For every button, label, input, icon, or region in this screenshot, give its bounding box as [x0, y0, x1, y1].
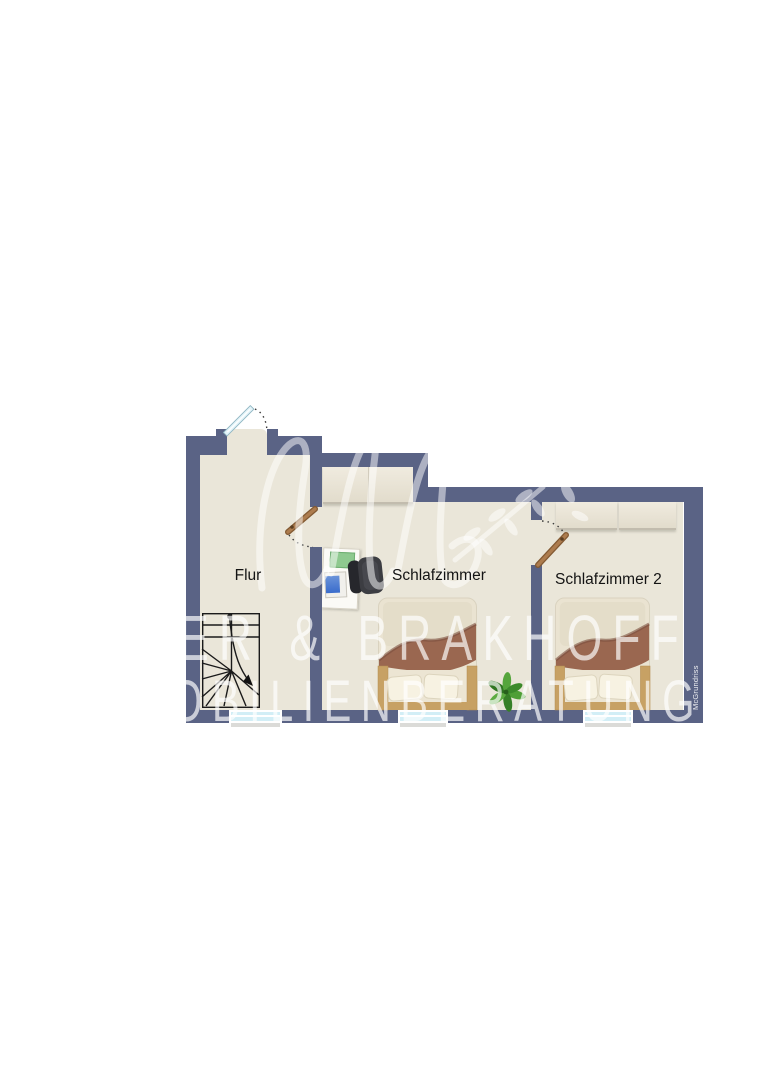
room-label-flur: Flur: [220, 567, 276, 585]
svg-text:ER & BRAKHOFF: ER & BRAKHOFF: [178, 603, 689, 674]
plan-graphics: ER & BRAKHOFF OBILIENBERATUNG: [0, 0, 763, 1080]
room-label-schlafzimmer: Schlafzimmer: [392, 567, 486, 585]
watermark-leaves: [461, 468, 589, 557]
door-schlafzimmer-schlafzimmer2: [538, 521, 566, 565]
entrance-door: [223, 406, 267, 436]
room-label-schlafzimmer2: Schlafzimmer 2: [555, 571, 662, 589]
office-chair: [347, 556, 385, 596]
svg-text:OBILIENBERATUNG: OBILIENBERATUNG: [170, 668, 704, 733]
floor-plan-page: ER & BRAKHOFF OBILIENBERATUNG Flur Schla…: [0, 0, 763, 1080]
entrance-door-swing-arc: [255, 409, 267, 431]
watermark-row-1: ER & BRAKHOFF: [178, 603, 689, 674]
mcgrundriss-credit: McGrundriss: [691, 665, 700, 710]
door2-swing-arc: [542, 521, 564, 533]
watermark-row-2: OBILIENBERATUNG: [170, 668, 704, 733]
